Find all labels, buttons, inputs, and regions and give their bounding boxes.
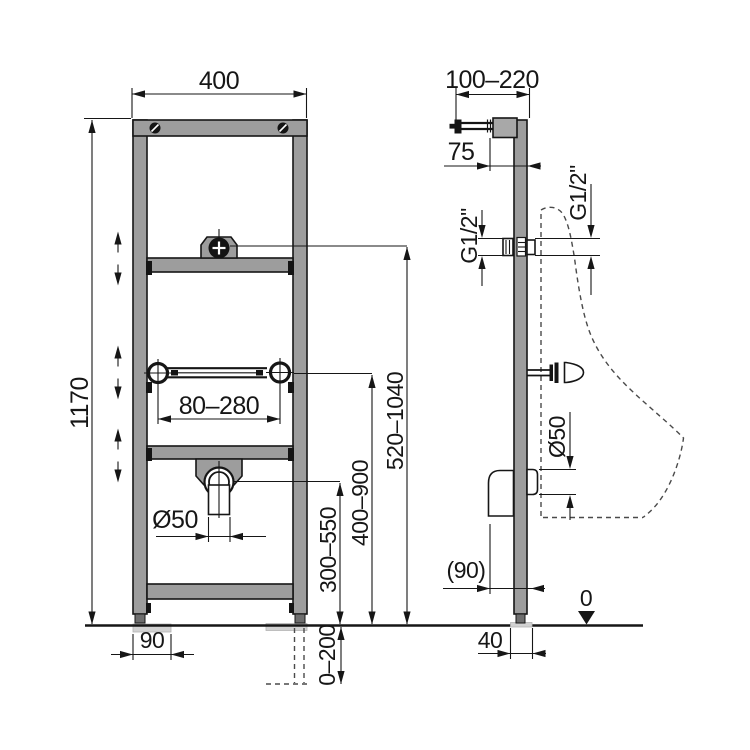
side-view: 100–220 75 G1/: [443, 66, 684, 659]
dim-inlet-offset-label: 75: [448, 138, 475, 166]
clamp: [288, 448, 294, 461]
dim-inlet-height-label: 520–1040: [382, 372, 408, 470]
dim-foot-plate-label: 90: [140, 627, 165, 653]
dim-profile-depth-label: 40: [478, 627, 503, 653]
dim-front-width: 400: [132, 67, 307, 118]
foot-bolt: [289, 603, 294, 613]
front-right-post: [293, 120, 307, 614]
bracket-bolt-tip: [450, 124, 455, 129]
dim-rail-span: 80–280: [158, 386, 280, 424]
drawing-svg: 400 1170: [0, 0, 750, 750]
dim-drain-height: 300–550: [234, 482, 344, 625]
dim-thread-right: G1/2": [535, 165, 600, 295]
datum-triangle-icon: [578, 611, 595, 625]
dim-front-height-label: 1170: [66, 377, 94, 429]
dim-side-drain-diameter: Ø50: [539, 412, 576, 520]
dim-profile-depth: 40: [478, 627, 546, 659]
rail-clamp: [288, 382, 294, 393]
stud-cap: [565, 363, 584, 383]
side-post: [514, 120, 527, 614]
dim-leg-extension-label: 0–200: [314, 624, 340, 685]
dim-front-height: 1170: [66, 119, 131, 625]
mounting-stud: [527, 363, 584, 384]
clamp: [146, 448, 152, 461]
dim-rail-height-label: 400–900: [347, 460, 373, 546]
dim-arm-depth-label: 100–220: [445, 66, 539, 94]
technical-drawing-canvas: 400 1170: [0, 0, 750, 750]
front-view: 400 1170: [66, 67, 411, 686]
side-frame: [450, 118, 533, 627]
dim-rail-span-label: 80–280: [179, 392, 259, 420]
dim-drain-offset-label: (90): [447, 557, 486, 583]
drain-assembly: [196, 459, 242, 518]
dim-arm-depth: 100–220: [445, 66, 539, 122]
floor-datum-label: 0: [580, 585, 592, 611]
urinal-outline: [541, 207, 684, 517]
dim-foot-plate: 90: [111, 627, 194, 660]
dim-front-drain-diameter-label: Ø50: [152, 506, 198, 534]
clamp: [288, 261, 294, 275]
foot-bolt: [146, 603, 151, 613]
rail-clamp: [146, 382, 152, 393]
mounting-rail: [144, 358, 294, 387]
dim-leg-extension: 0–200: [266, 624, 345, 685]
front-left-post: [133, 120, 147, 614]
front-crossbar-inlet: [147, 258, 293, 272]
floor-datum: 0: [578, 585, 595, 625]
side-adjustable-foot: [516, 614, 525, 623]
adjustable-foot: [295, 614, 305, 623]
front-crossbar-drain: [147, 446, 293, 459]
dim-side-drain-diameter-label: Ø50: [544, 416, 570, 458]
adjustability-arrows: [114, 232, 121, 483]
dim-thread-left: G1/2": [456, 208, 503, 286]
dim-thread-right-label: G1/2": [565, 165, 591, 221]
side-drain: [489, 470, 538, 517]
wall-bracket: [493, 118, 517, 138]
drain-stub: [527, 470, 538, 495]
dim-thread-left-label: G1/2": [456, 208, 482, 264]
dim-drain-height-label: 300–550: [315, 507, 341, 593]
dim-front-width-label: 400: [199, 67, 239, 95]
dim-drain-offset: (90): [443, 524, 545, 594]
drain-elbow: [489, 471, 514, 517]
inlet-thread-fitting: [503, 238, 535, 257]
front-crossbar-bottom: [147, 584, 293, 599]
adjustable-foot: [135, 614, 145, 623]
water-inlet-fitting: [201, 229, 237, 259]
clamp: [146, 261, 152, 275]
